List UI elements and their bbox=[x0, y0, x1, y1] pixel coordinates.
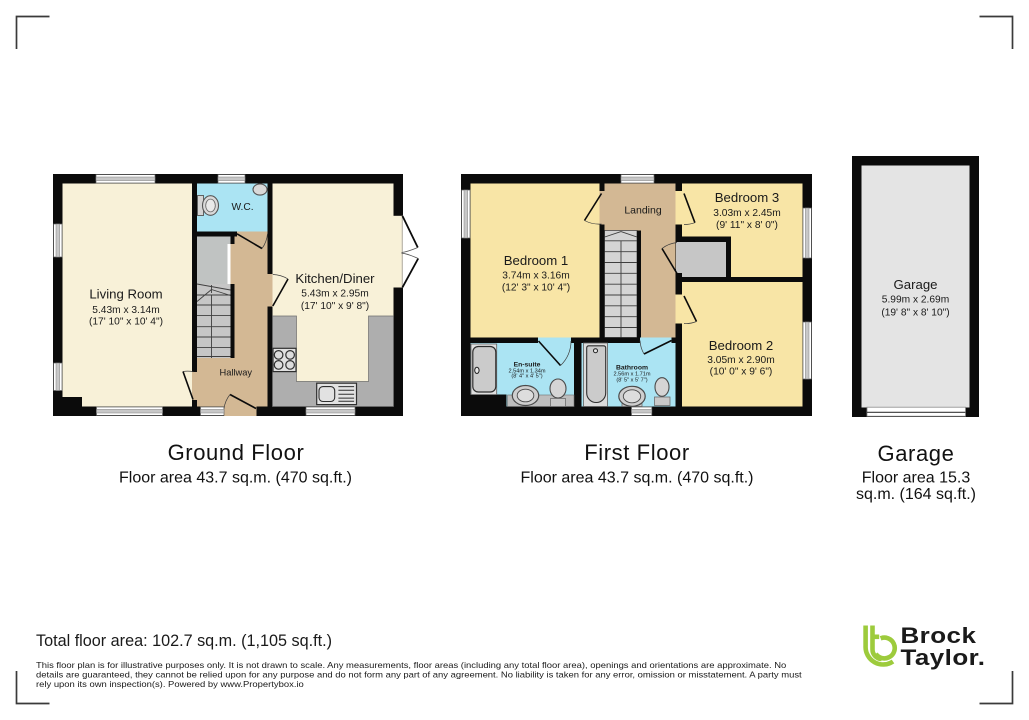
svg-text:(8' 4" x 4' 5"): (8' 4" x 4' 5") bbox=[511, 374, 542, 380]
svg-text:Floor area 43.7 sq.m. (470 sq.: Floor area 43.7 sq.m. (470 sq.ft.) bbox=[521, 469, 754, 486]
svg-text:sq.m. (164 sq.ft.): sq.m. (164 sq.ft.) bbox=[856, 486, 976, 503]
svg-text:Garage: Garage bbox=[878, 441, 955, 466]
svg-text:Bathroom: Bathroom bbox=[616, 364, 648, 371]
svg-text:5.99m x 2.69m: 5.99m x 2.69m bbox=[882, 295, 949, 306]
svg-text:First Floor: First Floor bbox=[584, 440, 690, 465]
svg-text:(19' 8" x 8' 10"): (19' 8" x 8' 10") bbox=[881, 308, 949, 319]
svg-text:5.43m x 2.95m: 5.43m x 2.95m bbox=[301, 289, 368, 300]
svg-text:(10' 0" x 9' 6"): (10' 0" x 9' 6") bbox=[710, 367, 773, 378]
svg-text:Living Room: Living Room bbox=[89, 287, 162, 302]
svg-text:3.74m x 3.16m: 3.74m x 3.16m bbox=[502, 271, 569, 282]
svg-text:details are guaranteed, they c: details are guaranteed, they cannot be r… bbox=[36, 670, 802, 679]
svg-text:This floor plan is for illustr: This floor plan is for illustrative purp… bbox=[36, 660, 786, 669]
svg-text:(12' 3" x 10' 4"): (12' 3" x 10' 4") bbox=[502, 283, 570, 294]
svg-text:Floor area 15.3: Floor area 15.3 bbox=[862, 469, 971, 486]
svg-text:(9' 11" x 8' 0"): (9' 11" x 8' 0") bbox=[716, 220, 778, 231]
svg-text:Bedroom 2: Bedroom 2 bbox=[709, 338, 774, 353]
svg-text:3.05m x 2.90m: 3.05m x 2.90m bbox=[707, 355, 774, 366]
svg-text:Bedroom 1: Bedroom 1 bbox=[504, 253, 569, 268]
svg-text:Bedroom 3: Bedroom 3 bbox=[715, 190, 780, 205]
svg-text:W.C.: W.C. bbox=[231, 202, 253, 213]
svg-text:(17' 10" x 9' 8"): (17' 10" x 9' 8") bbox=[301, 301, 369, 312]
svg-text:3.03m x 2.45m: 3.03m x 2.45m bbox=[713, 208, 780, 219]
svg-text:Taylor.: Taylor. bbox=[900, 646, 985, 671]
svg-text:Garage: Garage bbox=[894, 277, 938, 292]
svg-text:Brock: Brock bbox=[900, 624, 976, 649]
svg-text:Landing: Landing bbox=[624, 204, 662, 216]
svg-text:(8' 5" x 5' 7"): (8' 5" x 5' 7") bbox=[616, 378, 647, 384]
svg-text:5.43m x 3.14m: 5.43m x 3.14m bbox=[92, 305, 159, 316]
svg-text:Hallway: Hallway bbox=[220, 368, 253, 378]
svg-text:rely upon its own inspection(s: rely upon its own inspection(s). Powered… bbox=[36, 680, 304, 689]
svg-text:En-suite: En-suite bbox=[514, 361, 541, 368]
svg-text:Floor area 43.7 sq.m. (470 sq.: Floor area 43.7 sq.m. (470 sq.ft.) bbox=[119, 469, 352, 486]
svg-text:Ground Floor: Ground Floor bbox=[168, 440, 305, 465]
svg-text:(17' 10" x 10' 4"): (17' 10" x 10' 4") bbox=[89, 317, 163, 328]
svg-text:Kitchen/Diner: Kitchen/Diner bbox=[295, 271, 375, 286]
svg-text:Total floor area: 102.7 sq.m.: Total floor area: 102.7 sq.m. (1,105 sq.… bbox=[36, 632, 332, 650]
